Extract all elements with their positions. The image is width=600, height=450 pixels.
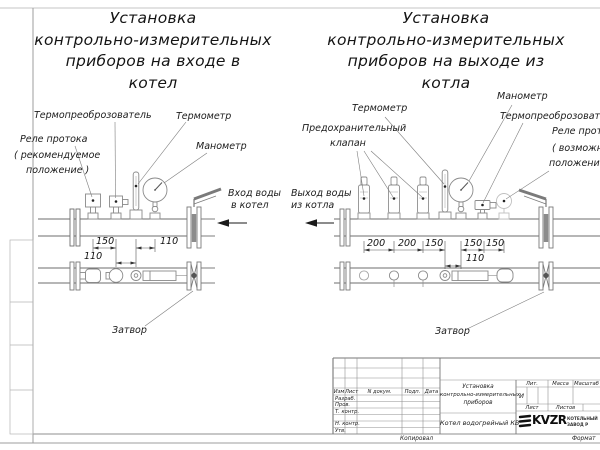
left-flow-direction-line2: в котел [231, 200, 269, 211]
stamp-col-podp: Подп. [402, 389, 423, 395]
stamp-mass-label: Масса [548, 381, 573, 387]
left-flow-relay-note2: положение ) [26, 165, 89, 176]
right-thermometer-label: Термометр [352, 103, 407, 114]
stamp-sheet-label: Лист [516, 405, 548, 411]
left-valve-label: Затвор [112, 325, 147, 336]
left-title-line2: контрольно-измерительных [28, 30, 278, 52]
right-title-line1: Установка [300, 8, 592, 30]
left-title-line3: приборов на входе в [28, 51, 278, 73]
kvzr-logo-subline2: ЗАВОД Р [567, 422, 588, 427]
stamp-col-data: Дата [423, 389, 440, 395]
flow-arrow-left [217, 219, 247, 227]
right-safety-valve-label2: клапан [330, 138, 366, 149]
margin-stamp-boxes [10, 240, 33, 434]
right-dim-150b: 150 [464, 238, 482, 249]
right-dim-150c: 150 [486, 238, 504, 249]
kvzr-logo-subline1: КОТЕЛЬНЫЙ [567, 416, 598, 421]
left-flow-direction-line1: Вход воды [228, 188, 281, 199]
stamp-col-izm: Изм [333, 389, 345, 395]
right-dim-200b: 200 [398, 238, 416, 249]
left-dim-150: 150 [96, 236, 114, 247]
right-title-line4: котла [300, 73, 592, 95]
right-flow-relay-label: Реле протока [552, 126, 600, 137]
kvzr-logo-mark [520, 416, 530, 426]
flow-arrow-right [305, 219, 334, 227]
stamp-row-nkontr: Н. контр. [335, 421, 360, 427]
left-transducer-label: Термопреоброзователь [34, 110, 152, 121]
right-plan-view [334, 262, 600, 290]
stamp-row-tkontr: Т. контр. [335, 409, 359, 415]
left-manometer-label: Манометр [196, 141, 247, 152]
left-title-line4: котел [28, 73, 278, 95]
right-leader-lines [357, 105, 549, 329]
left-flow-relay-note1: ( рекомендуемое [14, 150, 100, 161]
stamp-col-list: Лист [345, 389, 357, 395]
stamp-scale-label: Масштаб [573, 381, 600, 387]
right-title-line3: приборов на выходе из [300, 51, 592, 73]
stamp-row-razrab: Разраб. [335, 396, 355, 402]
left-thermometer-label: Термометр [176, 111, 231, 122]
right-flow-relay-note1: ( возможное [552, 143, 600, 154]
stamp-product-name: Котел водогрейный КВ [440, 419, 516, 427]
left-title: Установка контрольно-измерительных прибо… [28, 8, 278, 94]
stamp-col-ndocum: N докум. [357, 389, 402, 395]
right-side-view [305, 170, 600, 248]
drawing-sheet: Установка контрольно-измерительных прибо… [0, 0, 600, 450]
stamp-lit-value: И [516, 392, 527, 400]
right-flow-relay-note2: положение ) [549, 158, 600, 169]
right-dim-150a: 150 [425, 238, 443, 249]
right-title-line2: контрольно-измерительных [300, 30, 592, 52]
stamp-copied-label: Копировал [400, 436, 433, 442]
stamp-row-utv: Утв. [335, 428, 346, 434]
left-flow-relay-label: Реле протока [20, 134, 87, 145]
right-transducer-label: Термопреоброзователь [500, 111, 600, 122]
stamp-row-prov: Пров. [335, 402, 350, 408]
stamp-doc-title-line1: Установка [440, 384, 516, 390]
kvzr-logo-text: KVZR [532, 413, 567, 427]
right-dim-110: 110 [466, 253, 484, 264]
left-dim-110a: 110 [160, 236, 178, 247]
stamp-doc-title-line2: контрольно-измерительных [440, 392, 516, 398]
left-title-line1: Установка [28, 8, 278, 30]
stamp-sheets-label: Листов [548, 405, 583, 411]
right-flow-direction-line2: из котла [291, 200, 334, 211]
left-side-view [38, 172, 247, 248]
right-manometer-label: Манометр [497, 91, 548, 102]
stamp-doc-title-line3: приборов [440, 400, 516, 406]
left-dim-110b: 110 [84, 251, 102, 262]
left-plan-view [38, 262, 215, 290]
right-flow-direction-line1: Выход воды [291, 188, 352, 199]
right-title: Установка контрольно-измерительных прибо… [300, 8, 592, 94]
right-valve-label: Затвор [435, 326, 470, 337]
right-safety-valve-label1: Предохранительный [302, 123, 406, 134]
right-dim-200a: 200 [367, 238, 385, 249]
stamp-format-label: Формат [572, 436, 596, 442]
stamp-lit-label: Лит. [516, 381, 548, 387]
